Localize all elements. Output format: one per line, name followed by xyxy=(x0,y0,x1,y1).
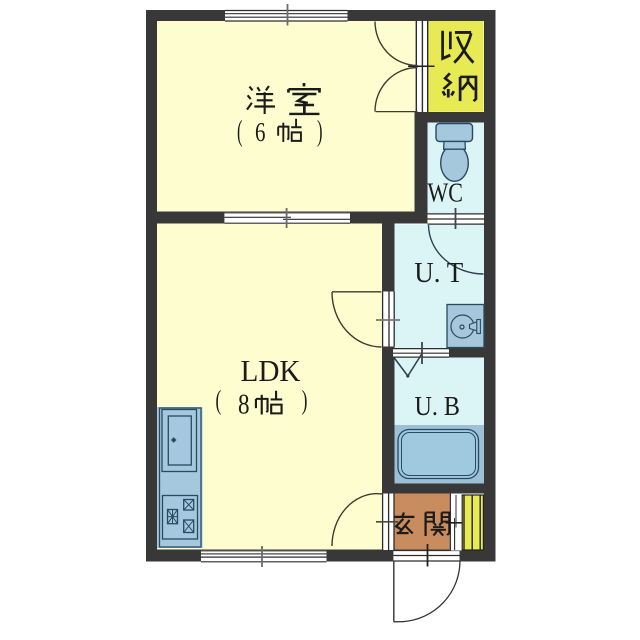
svg-text:WC: WC xyxy=(428,178,464,208)
svg-text:LDK: LDK xyxy=(241,353,302,388)
svg-text:8: 8 xyxy=(238,388,250,420)
svg-text:): ) xyxy=(317,115,323,148)
svg-text:(: ( xyxy=(216,385,222,415)
svg-text:): ) xyxy=(302,385,308,415)
svg-text:(: ( xyxy=(237,115,243,148)
svg-text:6: 6 xyxy=(255,117,266,147)
svg-text:U. T: U. T xyxy=(414,258,463,289)
svg-text:U. B: U. B xyxy=(415,391,461,421)
